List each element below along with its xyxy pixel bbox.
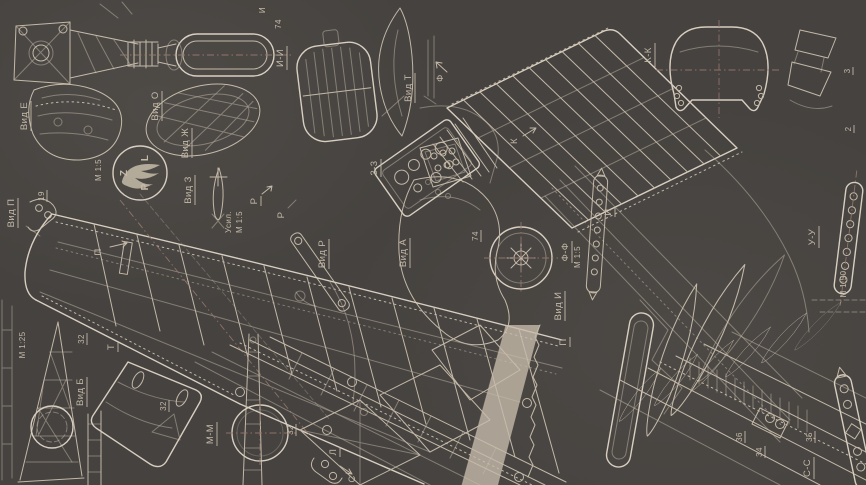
label-ss: С-С xyxy=(802,457,814,479)
svg-text:М-М: М-М xyxy=(205,424,216,444)
label-r-arrow2: Р xyxy=(276,212,287,219)
label-vid-o: Вид О xyxy=(150,91,162,121)
svg-text:К-К: К-К xyxy=(643,47,654,62)
svg-text:3-3: 3-3 xyxy=(369,161,380,176)
wheel xyxy=(484,222,558,294)
label-ff: Ф-Ф xyxy=(560,241,572,263)
label-m125: М 1:25 xyxy=(18,331,27,358)
svg-text:74: 74 xyxy=(471,231,480,241)
svg-text:Вид Р: Вид Р xyxy=(317,240,328,268)
svg-text:2: 2 xyxy=(844,126,853,131)
label-74b: 74 xyxy=(471,230,481,242)
svg-text:19: 19 xyxy=(37,191,46,201)
label-34: 34 xyxy=(755,446,765,458)
label-m15-a: М 1:5 xyxy=(94,159,103,181)
blueprint-drawing: P Z L xyxy=(0,0,866,485)
label-l-small: Л xyxy=(328,447,340,457)
svg-text:С: С xyxy=(347,475,358,482)
label-32a: 32 xyxy=(77,333,87,345)
label-mm: М-М xyxy=(205,422,217,446)
blueprint-sheet: P Z L xyxy=(0,0,866,485)
label-usil: Усил. xyxy=(224,211,233,233)
vid-t-front-view xyxy=(293,26,380,144)
trailing-edge-structure xyxy=(600,299,866,485)
label-vid-i: Вид И xyxy=(553,291,565,321)
svg-text:Вид И: Вид И xyxy=(553,292,564,321)
label-i-top: И xyxy=(258,7,267,13)
label-kk: К-К xyxy=(643,43,655,67)
label-s-small: С xyxy=(347,475,358,482)
svg-text:К: К xyxy=(509,138,520,144)
svg-text:Р: Р xyxy=(276,212,287,219)
svg-text:Вид З: Вид З xyxy=(183,176,194,204)
svg-text:И-И: И-И xyxy=(275,49,286,67)
svg-text:М 1:50: М 1:50 xyxy=(839,270,848,297)
propeller-blade xyxy=(379,8,436,136)
label-33: 3-3 xyxy=(369,159,381,177)
svg-text:36: 36 xyxy=(735,432,744,442)
spar-band xyxy=(462,325,540,485)
view-labels: И-И 74 И Вид Е Вид О Вид Ж М 1:5 Вид П 1… xyxy=(6,7,854,483)
label-p-small: П xyxy=(558,337,570,347)
label-m15-b: М 1:5 xyxy=(235,211,244,233)
label-k-arrow: К xyxy=(509,138,520,144)
svg-text:Вид П: Вид П xyxy=(6,199,17,228)
label-uu: У-У xyxy=(807,226,819,248)
svg-text:Ф-Ф: Ф-Ф xyxy=(560,243,571,262)
label-19: 19 xyxy=(37,190,47,202)
svg-text:П: П xyxy=(93,248,104,255)
label-vid-t: Вид Т xyxy=(403,73,415,103)
svg-text:Вид О: Вид О xyxy=(150,91,161,120)
svg-text:Вид Б: Вид Б xyxy=(75,378,86,406)
svg-text:35: 35 xyxy=(805,432,814,442)
top-right-bracket xyxy=(788,30,836,108)
svg-text:М 1:5: М 1:5 xyxy=(235,211,244,233)
svg-text:Ф: Ф xyxy=(435,74,446,82)
svg-text:Усил.: Усил. xyxy=(224,211,233,233)
svg-text:М 1:5: М 1:5 xyxy=(94,159,103,181)
svg-text:32: 32 xyxy=(77,334,86,344)
label-74: 74 xyxy=(274,19,283,29)
svg-text:С-С: С-С xyxy=(802,459,813,477)
uu-section xyxy=(705,150,866,332)
svg-text:Т: Т xyxy=(106,344,117,350)
vid-p-bracket xyxy=(26,199,56,236)
label-m15-c: М 1:5 xyxy=(573,246,582,268)
svg-text:Вид Т: Вид Т xyxy=(403,74,414,102)
svg-text:И: И xyxy=(258,7,267,13)
label-vid-b: Вид Б xyxy=(75,377,87,407)
label-ii: И-И xyxy=(275,46,287,70)
svg-text:Вид Е: Вид Е xyxy=(19,102,30,130)
kk-section xyxy=(656,20,782,118)
perforated-panel xyxy=(399,177,509,345)
label-f-arrow: Ф xyxy=(435,74,446,82)
label-r-arrow: Р xyxy=(249,196,261,206)
label-vid-p: Вид П xyxy=(6,198,18,228)
svg-text:3: 3 xyxy=(843,68,852,73)
label-vid-e: Вид Е xyxy=(19,101,31,131)
label-3: 3 xyxy=(843,67,853,75)
svg-text:Р: Р xyxy=(249,198,260,205)
label-i-small: И xyxy=(603,207,615,217)
svg-text:М 1:25: М 1:25 xyxy=(18,331,27,358)
svg-text:Вид Ж: Вид Ж xyxy=(180,128,191,159)
logo-letter-p: P xyxy=(140,183,151,190)
pzl-logo: P Z L xyxy=(113,146,167,200)
svg-text:34: 34 xyxy=(755,447,764,457)
engine-mount-assembly xyxy=(14,2,292,84)
ff-section-rib xyxy=(585,168,608,301)
vid-b-cowl-flap xyxy=(91,362,201,467)
label-p-arrow: П xyxy=(93,248,104,255)
label-vid-z: Вид З xyxy=(183,175,195,205)
svg-text:У-У: У-У xyxy=(807,228,818,245)
label-vid-a: Вид А xyxy=(398,238,410,268)
label-m150: М 1:50 xyxy=(839,270,848,297)
svg-text:Вид А: Вид А xyxy=(398,239,409,267)
label-32b: 32 xyxy=(286,424,296,436)
label-35: 35 xyxy=(805,431,815,443)
svg-text:П: П xyxy=(558,338,569,345)
logo-letter-l: L xyxy=(140,155,151,161)
svg-text:32: 32 xyxy=(286,425,295,435)
label-32c: 32 xyxy=(159,400,169,412)
label-36: 36 xyxy=(735,431,745,443)
svg-text:М 1:5: М 1:5 xyxy=(573,246,582,268)
label-t-small: Т xyxy=(106,342,118,352)
svg-text:32: 32 xyxy=(159,401,168,411)
vid-e-panel xyxy=(29,84,122,160)
label-vid-r: Вид Р xyxy=(317,239,329,269)
label-2: 2 xyxy=(844,125,854,133)
logo-letter-z: Z xyxy=(119,170,130,176)
svg-text:74: 74 xyxy=(274,19,283,29)
svg-text:Л: Л xyxy=(328,449,339,456)
top-wing-panel xyxy=(447,28,742,232)
label-vid-zh: Вид Ж xyxy=(180,128,192,159)
svg-text:И: И xyxy=(603,208,614,215)
